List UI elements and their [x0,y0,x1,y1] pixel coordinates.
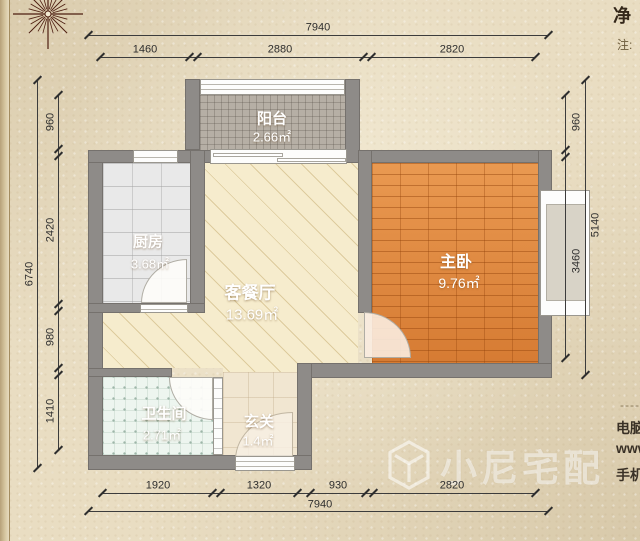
watermark: 小尼宅配 [386,436,606,494]
dim-bottom-seg3: 930 [329,481,347,492]
note-top: 注: [617,36,632,53]
dim-line-right-inner [565,95,566,358]
page-edge-decoration [0,0,10,541]
watermark-cube-icon [386,439,432,491]
dim-tick [581,370,590,379]
note-line2: www [616,440,640,456]
dim-tick [33,463,42,472]
dim-top-seg2: 2880 [268,45,292,56]
wall-bedroom-living-divider [358,150,372,313]
bedroom-area: 9.76㎡ [438,273,479,293]
dim-left-seg3: 980 [46,328,57,346]
compass-rose-icon [0,0,100,64]
living-dining-area: 13.69㎡ [226,304,279,325]
dim-tick [544,506,553,515]
dim-line-bottom-outer [88,511,548,512]
living-dining-label: 客餐厅 [225,279,276,304]
dim-left-seg4: 1410 [46,399,57,423]
bedroom-label: 主卧 [440,248,472,272]
dim-top-seg1: 1460 [133,45,157,56]
entrance-door-sill [235,456,295,471]
dim-bottom-total: 7940 [308,500,332,511]
dim-left-seg1: 960 [46,113,57,131]
dim-right-seg1: 960 [572,113,583,131]
dim-left-total: 6740 [25,262,36,286]
floor-plan-canvas: 阳台 2.66㎡ 厨房 3.68㎡ 客餐厅 13.69㎡ 主卧 9.76㎡ 卫生… [0,0,640,541]
kitchen-label: 厨房 [133,231,163,252]
dim-line-left-outer [37,80,38,468]
dim-tick [544,30,553,39]
wall-top-bedroom [358,150,552,163]
note-dashes: ----- [620,398,640,412]
dim-line-top-outer [88,35,548,36]
dim-bottom-seg2: 1320 [247,481,271,492]
dim-line-bottom-inner [102,493,535,494]
wall-balcony-left [185,79,200,150]
kitchen-door-sill [140,304,188,313]
balcony-sliding-door [210,149,347,164]
dim-tick [531,52,540,61]
bathroom-label: 卫生间 [141,403,186,424]
dim-bottom-seg1: 1920 [146,481,170,492]
kitchen-window [133,150,178,163]
dim-line-top-inner [100,57,535,58]
wall-entry-right [297,363,312,470]
balcony-area: 2.66㎡ [253,127,291,146]
note-top-big: 净 [613,2,631,28]
note-line1: 电脑 [616,418,640,438]
kitchen-area: 3.68㎡ [131,254,169,273]
dim-bottom-seg4: 2820 [440,481,464,492]
entry-label: 玄关 [244,411,274,432]
bathroom-area: 2.71㎡ [143,425,181,444]
watermark-brand-text: 小尼宅配 [440,438,604,492]
dim-left-seg2: 2420 [46,218,57,242]
dim-top-seg3: 2820 [440,45,464,56]
wall-bedroom-bottom [297,363,552,378]
dim-right-seg2: 3460 [572,249,583,273]
entry-area: 1.4㎡ [242,431,273,450]
wall-bathroom-top [88,368,172,377]
dim-right-total: 5140 [591,213,602,237]
dim-top-total: 7940 [306,23,330,34]
balcony-window [200,79,345,95]
dim-tick [561,353,570,362]
dim-tick [54,445,63,454]
note-line3: 手机 [616,465,640,485]
wall-kitchen-right [190,150,205,313]
bathroom-entry-partition [213,377,223,455]
balcony-label: 阳台 [257,108,287,129]
dim-line-right-outer [585,80,586,375]
